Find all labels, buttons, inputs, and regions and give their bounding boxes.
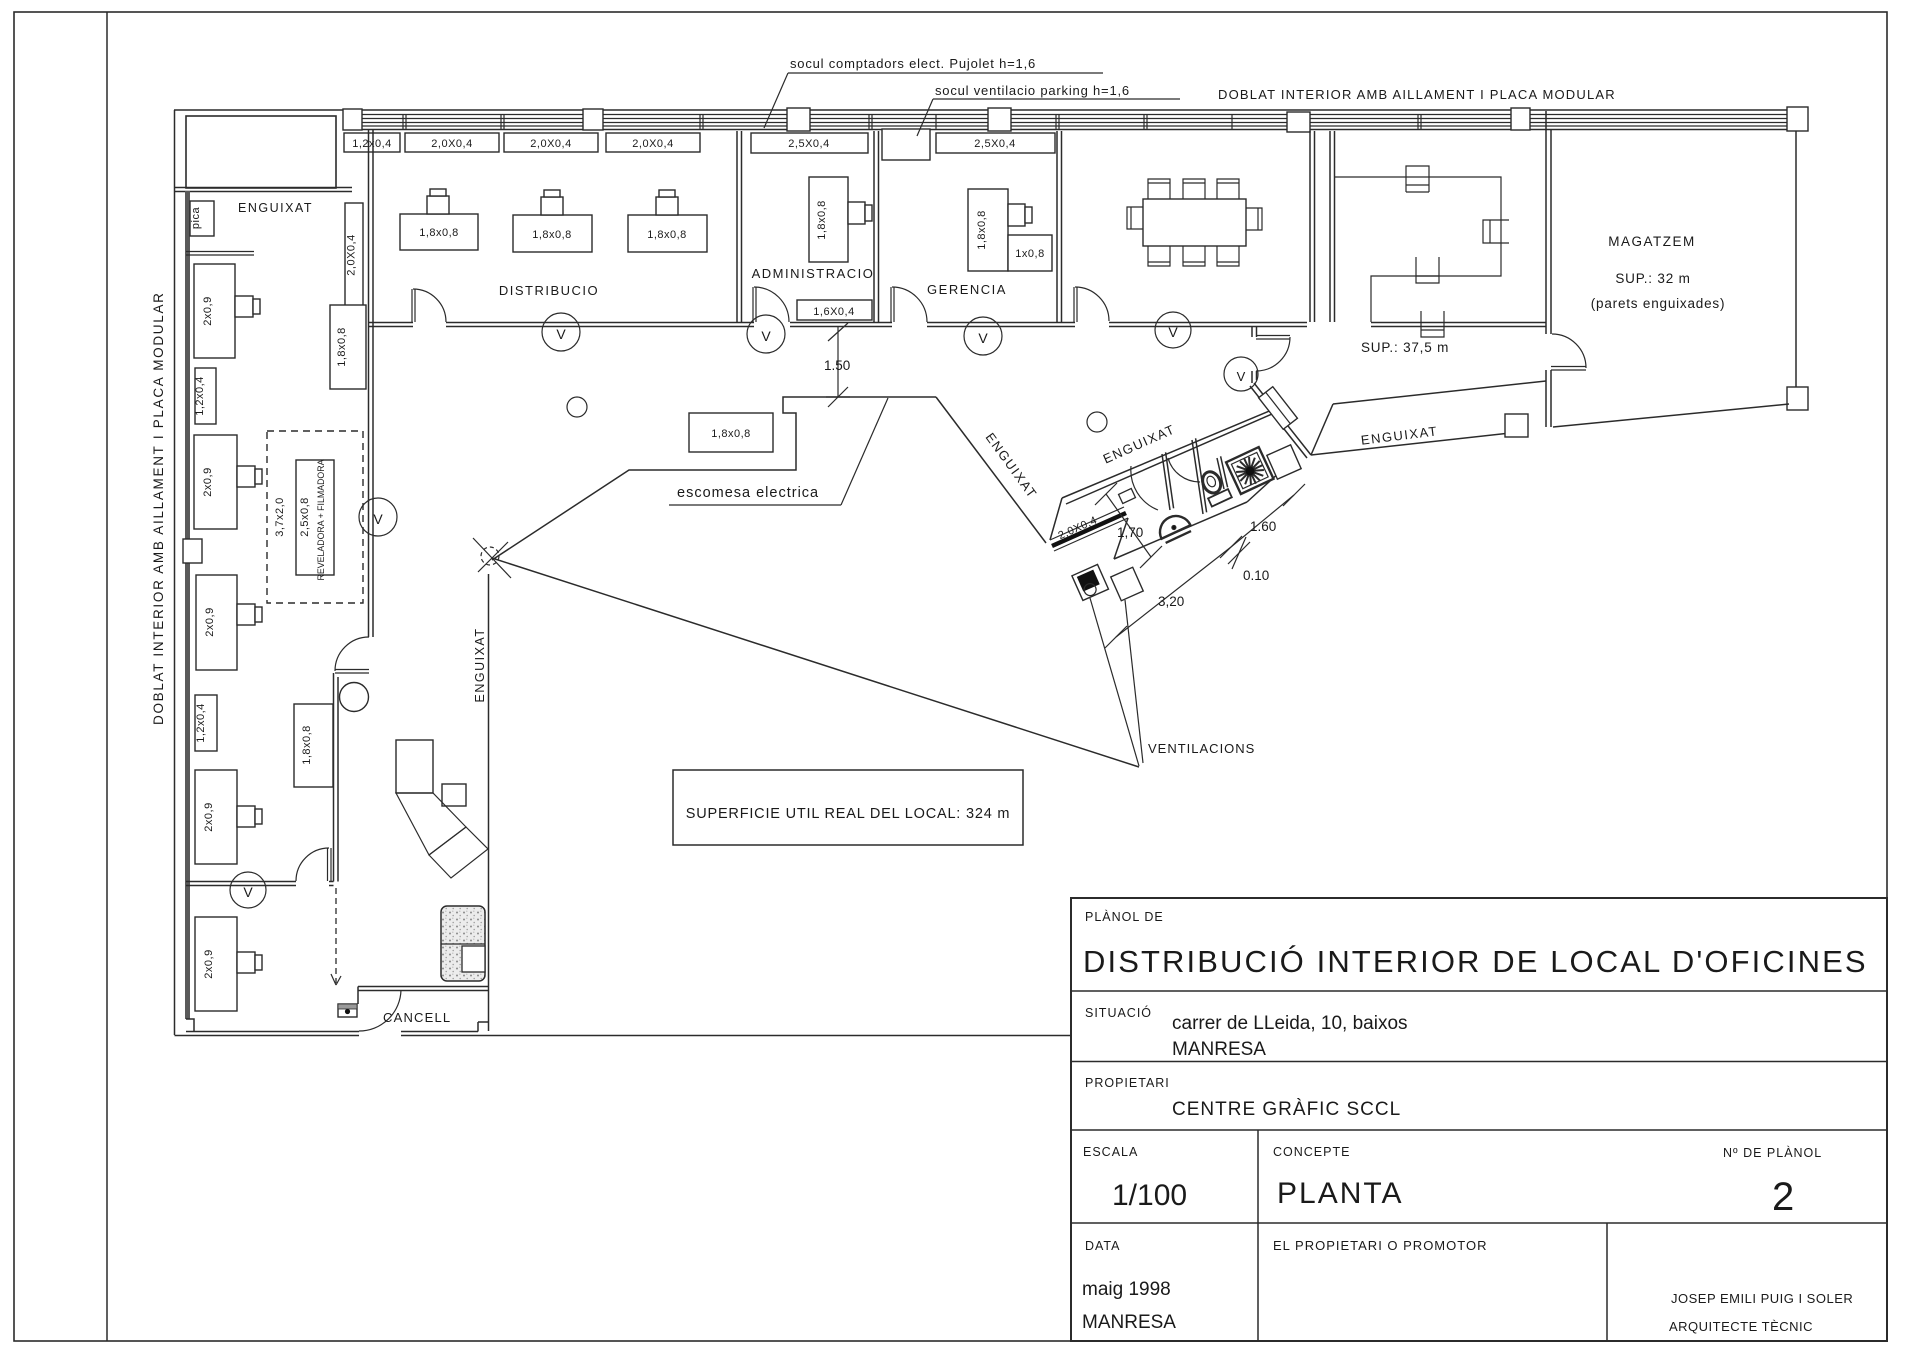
svg-text:PLANTA: PLANTA xyxy=(1277,1177,1403,1210)
svg-text:2x0,9: 2x0,9 xyxy=(203,802,215,831)
svg-text:GERENCIA: GERENCIA xyxy=(927,282,1007,297)
svg-text:3,20: 3,20 xyxy=(1158,594,1184,609)
svg-text:1,70: 1,70 xyxy=(1117,525,1143,540)
svg-text:2x0,9: 2x0,9 xyxy=(204,607,216,636)
svg-text:SUPERFICIE UTIL REAL DEL LOCAL: SUPERFICIE UTIL REAL DEL LOCAL: 324 m xyxy=(686,806,1011,822)
svg-text:socul ventilacio parking h=1,6: socul ventilacio parking h=1,6 xyxy=(935,83,1130,98)
svg-text:JOSEP EMILI PUIG I SOLER: JOSEP EMILI PUIG I SOLER xyxy=(1671,1291,1853,1306)
svg-text:REVELADORA + FILMADORA: REVELADORA + FILMADORA xyxy=(316,459,326,580)
svg-text:SUP.: 32 m: SUP.: 32 m xyxy=(1615,271,1690,286)
svg-text:PLÀNOL DE: PLÀNOL DE xyxy=(1085,909,1164,924)
svg-text:1,8x0,8: 1,8x0,8 xyxy=(301,725,313,765)
svg-text:DOBLAT INTERIOR AMB AILLAMENT: DOBLAT INTERIOR AMB AILLAMENT I PLACA MO… xyxy=(1218,87,1616,102)
svg-text:ENGUIXAT: ENGUIXAT xyxy=(473,628,487,703)
svg-text:2x0,9: 2x0,9 xyxy=(203,949,215,978)
svg-text:EL PROPIETARI O PROMOTOR: EL PROPIETARI O PROMOTOR xyxy=(1273,1238,1487,1253)
svg-text:CENTRE GRÀFIC SCCL: CENTRE GRÀFIC SCCL xyxy=(1172,1099,1401,1120)
svg-text:1x0,8: 1x0,8 xyxy=(1015,248,1044,260)
svg-text:1,8x0,8: 1,8x0,8 xyxy=(816,200,828,240)
svg-text:VENTILACIONS: VENTILACIONS xyxy=(1148,741,1255,756)
svg-text:ARQUITECTE TÈCNIC: ARQUITECTE TÈCNIC xyxy=(1669,1319,1813,1334)
svg-text:V: V xyxy=(1168,324,1178,340)
svg-text:ENGUIXAT: ENGUIXAT xyxy=(238,201,313,215)
svg-text:3,7x2,0: 3,7x2,0 xyxy=(274,497,286,537)
svg-text:ADMINISTRACIO: ADMINISTRACIO xyxy=(752,266,875,281)
svg-text:1,2x0,4: 1,2x0,4 xyxy=(195,703,207,743)
svg-text:1,8x0,8: 1,8x0,8 xyxy=(532,229,572,241)
svg-text:escomesa electrica: escomesa electrica xyxy=(677,485,819,501)
svg-text:2x0,9: 2x0,9 xyxy=(202,296,214,325)
svg-text:socul comptadors elect. Pujole: socul comptadors elect. Pujolet h=1,6 xyxy=(790,56,1036,71)
svg-text:SITUACIÓ: SITUACIÓ xyxy=(1085,1005,1152,1020)
svg-text:MAGATZEM: MAGATZEM xyxy=(1608,234,1696,249)
svg-text:2,0X0,4: 2,0X0,4 xyxy=(632,138,673,150)
svg-text:SUP.: 37,5 m: SUP.: 37,5 m xyxy=(1361,340,1449,355)
svg-text:1,6X0,4: 1,6X0,4 xyxy=(813,306,854,318)
svg-text:PROPIETARI: PROPIETARI xyxy=(1085,1076,1170,1090)
svg-text:MANRESA: MANRESA xyxy=(1172,1039,1266,1060)
svg-text:1,2x0,4: 1,2x0,4 xyxy=(194,376,206,416)
svg-text:1.60: 1.60 xyxy=(1250,519,1276,534)
svg-text:2,5x0,8: 2,5x0,8 xyxy=(299,497,311,537)
svg-text:DISTRIBUCIO: DISTRIBUCIO xyxy=(499,283,599,298)
svg-text:V: V xyxy=(556,326,566,342)
svg-text:1,8x0,8: 1,8x0,8 xyxy=(647,229,687,241)
svg-text:carrer de LLeida, 10, baixos: carrer de LLeida, 10, baixos xyxy=(1172,1013,1408,1034)
svg-text:1/100: 1/100 xyxy=(1112,1179,1187,1212)
svg-text:V: V xyxy=(761,328,771,344)
svg-text:DISTRIBUCIÓ INTERIOR DE LOCAL: DISTRIBUCIÓ INTERIOR DE LOCAL D'OFICINES xyxy=(1083,944,1868,979)
svg-text:CONCEPTE: CONCEPTE xyxy=(1273,1145,1350,1159)
svg-text:DOBLAT INTERIOR AMB AILLAMENT: DOBLAT INTERIOR AMB AILLAMENT I PLACA MO… xyxy=(151,291,166,725)
svg-text:2x0,9: 2x0,9 xyxy=(202,467,214,496)
svg-text:CANCELL: CANCELL xyxy=(383,1010,451,1025)
svg-text:2: 2 xyxy=(1772,1175,1794,1219)
svg-text:1,8x0,8: 1,8x0,8 xyxy=(419,227,459,239)
svg-text:V: V xyxy=(978,330,988,346)
svg-text:1,2x0,4: 1,2x0,4 xyxy=(352,138,392,150)
svg-text:2,5X0,4: 2,5X0,4 xyxy=(974,138,1015,150)
svg-text:2,0X0,4: 2,0X0,4 xyxy=(530,138,571,150)
svg-text:V: V xyxy=(243,884,253,900)
svg-text:1,8x0,8: 1,8x0,8 xyxy=(711,428,751,440)
svg-text:V: V xyxy=(373,511,383,527)
svg-text:Nº DE PLÀNOL: Nº DE PLÀNOL xyxy=(1723,1145,1822,1160)
svg-text:maig 1998: maig 1998 xyxy=(1082,1279,1171,1300)
svg-text:2,5X0,4: 2,5X0,4 xyxy=(788,138,829,150)
svg-text:MANRESA: MANRESA xyxy=(1082,1312,1176,1333)
svg-text:V: V xyxy=(1237,369,1246,384)
svg-text:2,0X0,4: 2,0X0,4 xyxy=(431,138,472,150)
svg-text:DATA: DATA xyxy=(1085,1239,1120,1253)
svg-text:0.10: 0.10 xyxy=(1243,568,1269,583)
svg-text:1.50: 1.50 xyxy=(824,358,850,373)
svg-text:1,8x0,8: 1,8x0,8 xyxy=(976,210,988,250)
svg-text:(parets enguixades): (parets enguixades) xyxy=(1591,296,1726,311)
svg-text:pica: pica xyxy=(190,207,202,230)
svg-text:1,8x0,8: 1,8x0,8 xyxy=(336,327,348,367)
svg-text:2,0X0,4: 2,0X0,4 xyxy=(346,234,358,275)
svg-text:ESCALA: ESCALA xyxy=(1083,1145,1138,1159)
